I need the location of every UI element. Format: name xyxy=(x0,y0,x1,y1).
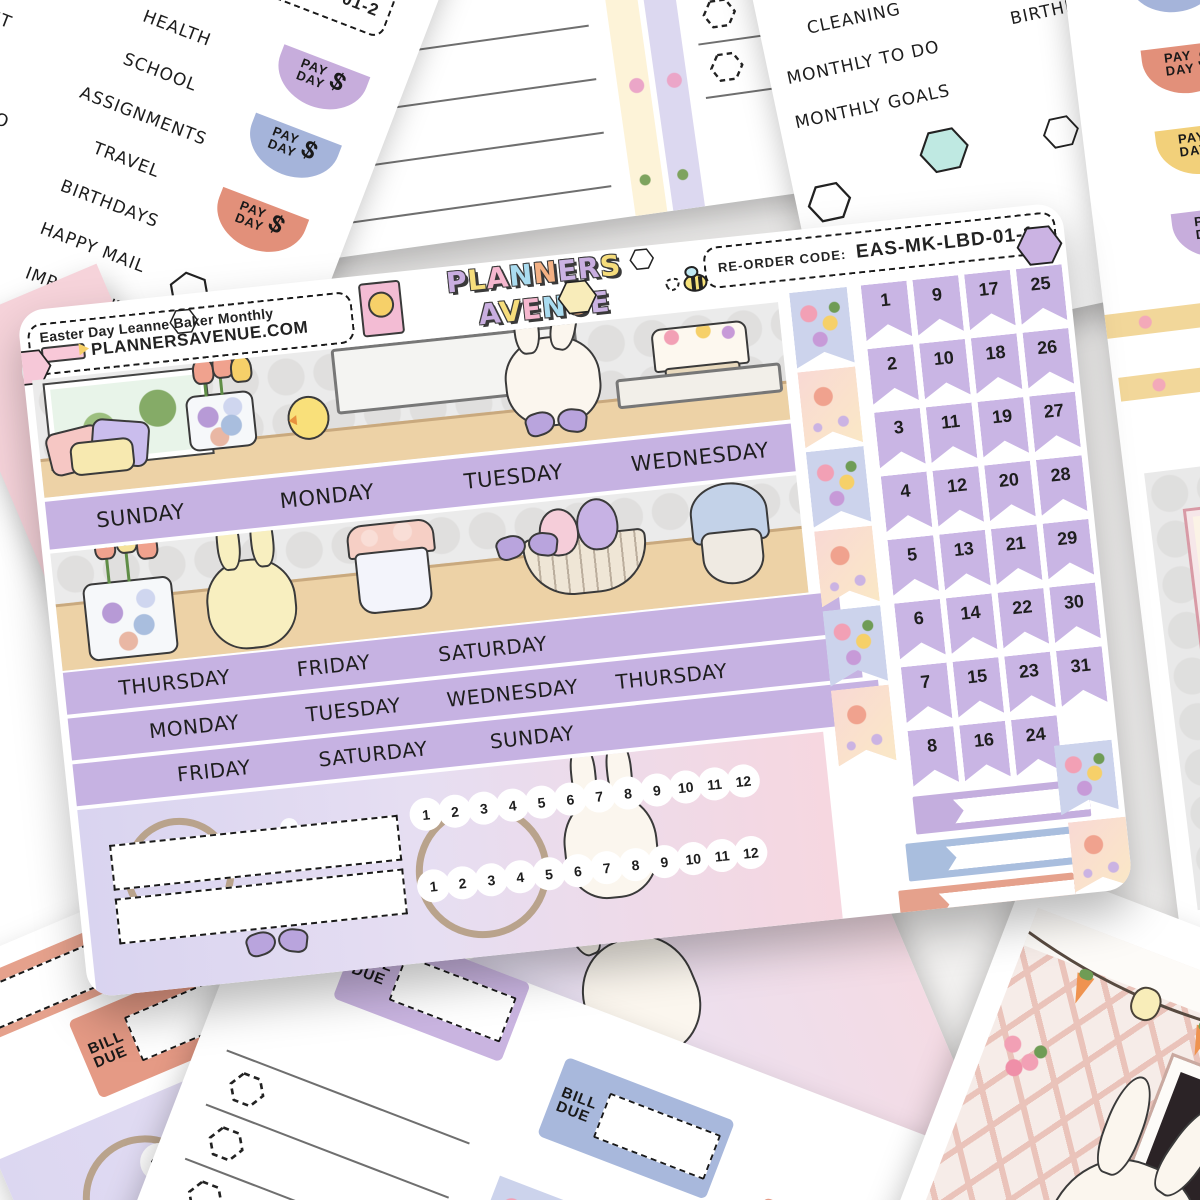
date-flag: 5 xyxy=(887,535,939,596)
day-label: SUNDAY xyxy=(451,717,613,758)
date-flag: 19 xyxy=(977,397,1029,458)
billdue-sticker: BILLDUE xyxy=(537,1057,735,1200)
date-flag: 12 xyxy=(932,466,984,527)
day-label: WEDNESDAY xyxy=(606,435,795,478)
day-label: TUESDAY xyxy=(272,689,434,730)
date-flag: 16 xyxy=(959,721,1011,782)
word-label: MONTHLY GOALS xyxy=(793,81,952,133)
date-flag: 2 xyxy=(867,344,919,405)
payday-sticker: PAYDAY$ xyxy=(267,44,370,122)
date-flag: 7 xyxy=(901,663,953,724)
hexagon-filled-purple xyxy=(1013,222,1065,269)
payday-sticker: PAYDAY$ xyxy=(239,113,342,191)
date-flag: 31 xyxy=(1056,646,1108,707)
hexagon-filled-mint xyxy=(914,122,974,178)
word-label: WISHLIST xyxy=(0,0,15,33)
word-label: TRAVEL xyxy=(90,138,162,182)
day-label: TUESDAY xyxy=(419,455,608,498)
day-label: FRIDAY xyxy=(133,750,295,791)
hexagon-outline-sticker xyxy=(1039,112,1083,152)
date-flag: 1 xyxy=(861,281,913,342)
day-label: MONDAY xyxy=(233,475,422,518)
date-flag: 26 xyxy=(1023,328,1075,389)
day-label: SATURDAY xyxy=(412,629,574,670)
day-label: FRIDAY xyxy=(253,645,415,686)
payday-sticker: PAYDAY$ xyxy=(1127,0,1200,17)
date-flag: 22 xyxy=(998,588,1050,649)
word-label: HEALTH xyxy=(140,7,214,51)
payday-sticker: PAYDAY$ xyxy=(1141,39,1200,98)
day-label: WEDNESDAY xyxy=(432,673,594,714)
date-flag: 21 xyxy=(991,524,1043,585)
reorder-code: EAS-MK-LBD-01-1 xyxy=(855,223,1036,264)
date-flag: 25 xyxy=(1016,264,1068,325)
hexagon-outline-sticker xyxy=(628,247,656,272)
hexagon-outline-sticker xyxy=(803,178,856,227)
date-flag: 4 xyxy=(881,472,933,533)
washi-strip-yellow xyxy=(1105,275,1200,339)
day-label: THURSDAY xyxy=(591,656,753,697)
sticker-kit-product-photo: WISHLISTCLEANINGMONTHLY TO DO HEALTHSCHO… xyxy=(0,0,1200,1200)
logo-letter: S xyxy=(598,248,623,283)
washi-strip-yellow xyxy=(1118,338,1200,402)
date-flag: 20 xyxy=(984,461,1036,522)
date-circle: 12 xyxy=(733,834,769,870)
date-flag: 11 xyxy=(926,402,978,463)
date-flag: 23 xyxy=(1004,652,1056,713)
date-flag: 13 xyxy=(939,530,991,591)
date-flag: 18 xyxy=(971,333,1023,394)
reorder-label: RE-ORDER CODE: xyxy=(717,246,847,274)
date-flag: 15 xyxy=(953,657,1005,718)
word-label: CLEANING xyxy=(805,0,902,39)
payday-sticker: PAYDAY$ xyxy=(1171,203,1200,262)
reorder-code-fragment: -01-2 xyxy=(333,0,382,21)
payday-sticker: PAYDAY$ xyxy=(206,187,309,265)
date-circle: 12 xyxy=(725,763,761,799)
word-label: MONTHLY TO DO xyxy=(785,37,941,89)
date-flag: 17 xyxy=(964,270,1016,331)
hexagon-outline-sticker xyxy=(167,307,200,336)
date-flag: 29 xyxy=(1043,519,1095,580)
date-flag: 28 xyxy=(1036,455,1088,516)
date-flag: 30 xyxy=(1049,583,1101,644)
word-label: MONTHLY TO DO xyxy=(0,59,12,133)
date-flag: 14 xyxy=(946,593,998,654)
word-label: BIRTHDAYS xyxy=(58,176,162,232)
date-flag: 3 xyxy=(874,408,926,469)
day-label: THURSDAY xyxy=(94,662,256,703)
word-label: SCHOOL xyxy=(120,49,200,96)
hexagon-filled-yellow xyxy=(555,277,601,317)
word-label: CLEANING xyxy=(0,25,1,78)
date-flag: 27 xyxy=(1029,392,1081,453)
date-flag: 9 xyxy=(912,275,964,336)
date-flag: 6 xyxy=(894,599,946,660)
egg-jar xyxy=(82,575,180,662)
cat-mug xyxy=(354,546,434,615)
date-flag: 24 xyxy=(1011,715,1063,776)
logo-letter: N xyxy=(507,258,535,293)
day-label: MONDAY xyxy=(113,706,275,747)
notebook-icon xyxy=(358,280,405,338)
day-label: SUNDAY xyxy=(46,494,235,537)
day-label: SATURDAY xyxy=(292,734,454,775)
payday-sticker: PAYDAY$ xyxy=(1155,120,1200,179)
floral-square-sticker xyxy=(473,1176,569,1200)
sheet-main-monthly-kit: Easter Day Leanne Baker Monthly PLANNERS… xyxy=(17,202,1133,998)
tulip-vase xyxy=(185,390,258,453)
date-flag: 10 xyxy=(919,339,971,400)
date-flag: 8 xyxy=(908,726,960,787)
floral-flag-sticker xyxy=(1068,817,1133,893)
quote-sticker-background: B KISS Ea Wis xyxy=(1144,427,1200,910)
